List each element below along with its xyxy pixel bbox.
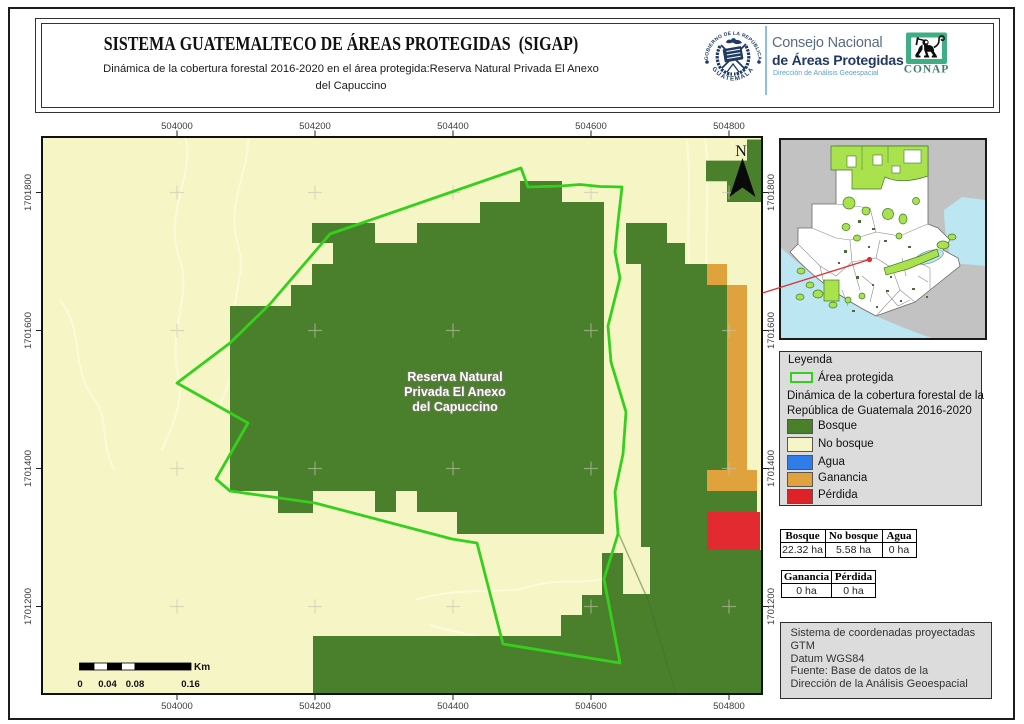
svg-text:GUATEMALA: GUATEMALA: [710, 66, 755, 83]
svg-text:Reserva Natural: Reserva Natural: [407, 370, 502, 384]
svg-text:N: N: [735, 143, 747, 160]
svg-text:0.16: 0.16: [181, 679, 200, 690]
svg-text:0.08: 0.08: [126, 679, 145, 690]
svg-text:Km: Km: [194, 662, 210, 673]
svg-text:0.04: 0.04: [98, 679, 117, 690]
svg-text:0: 0: [77, 679, 82, 690]
svg-text:Privada El Anexo: Privada El Anexo: [404, 385, 506, 399]
svg-text:del Capuccino: del Capuccino: [412, 400, 498, 414]
svg-text:CONAP: CONAP: [904, 64, 949, 76]
